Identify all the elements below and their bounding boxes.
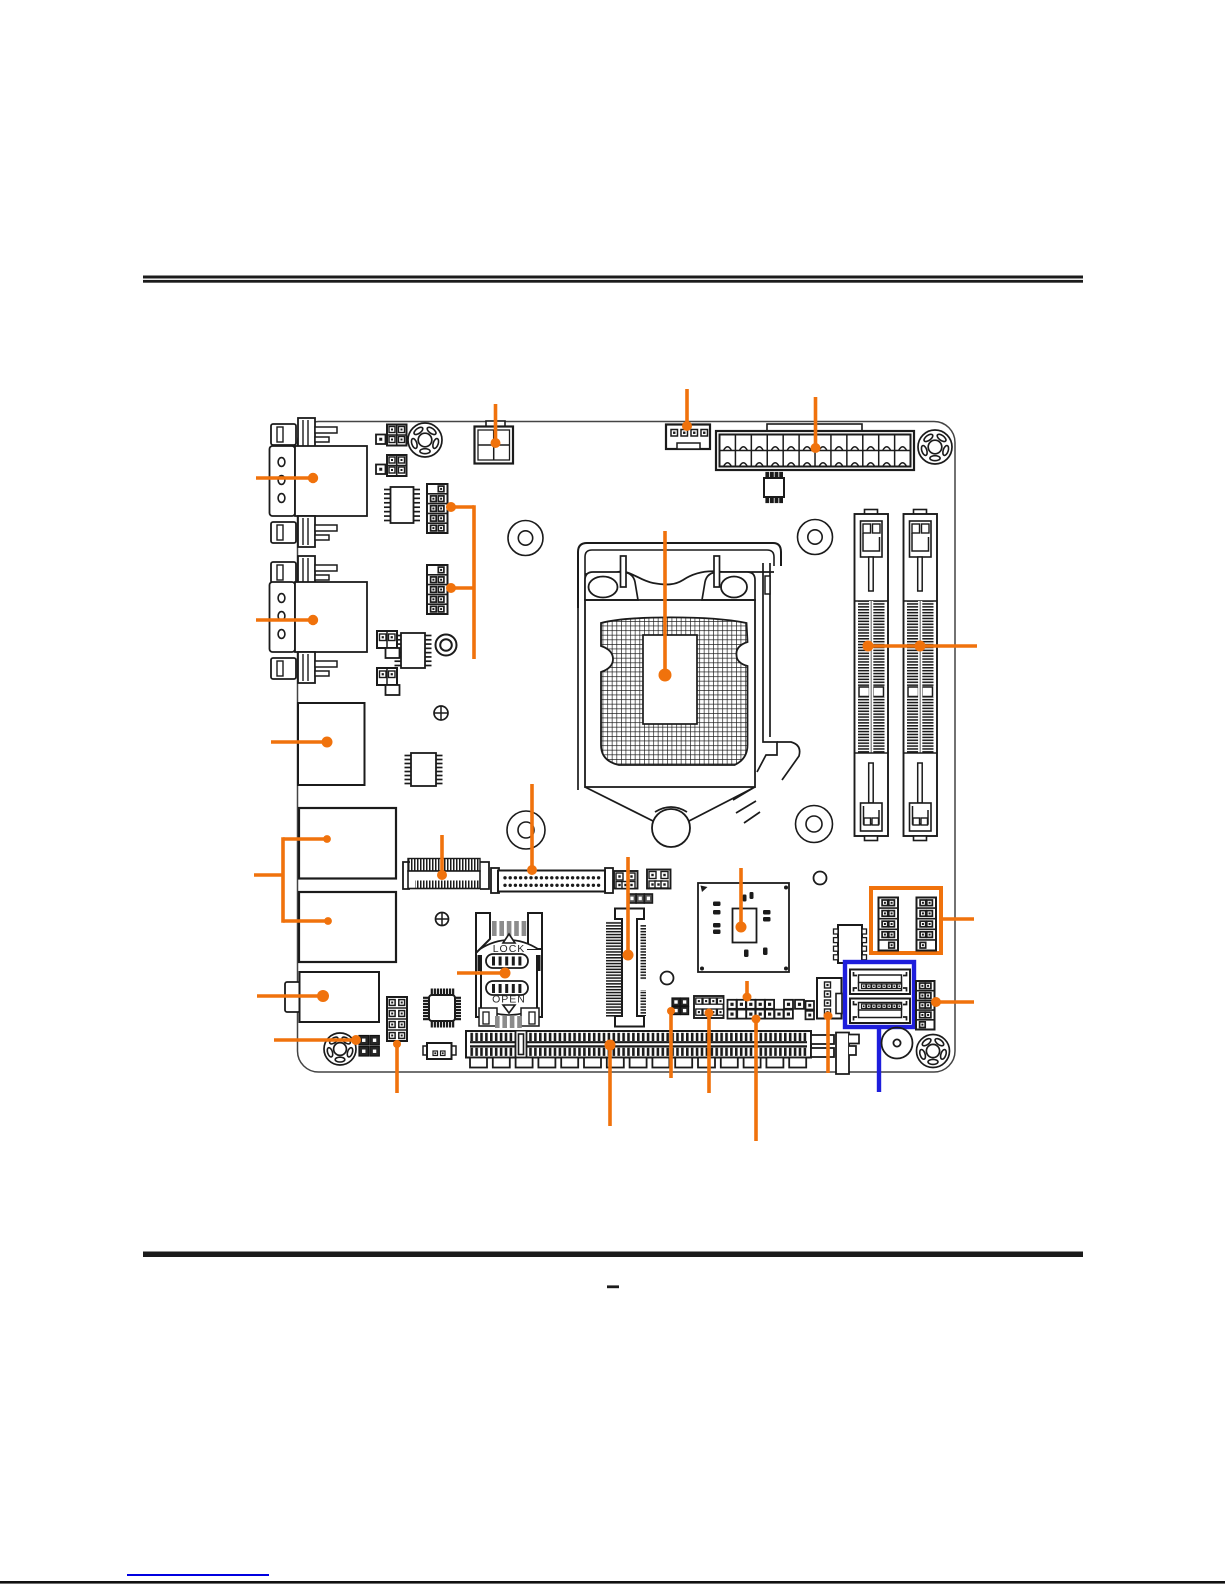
svg-text:OPEN: OPEN (492, 994, 526, 1006)
